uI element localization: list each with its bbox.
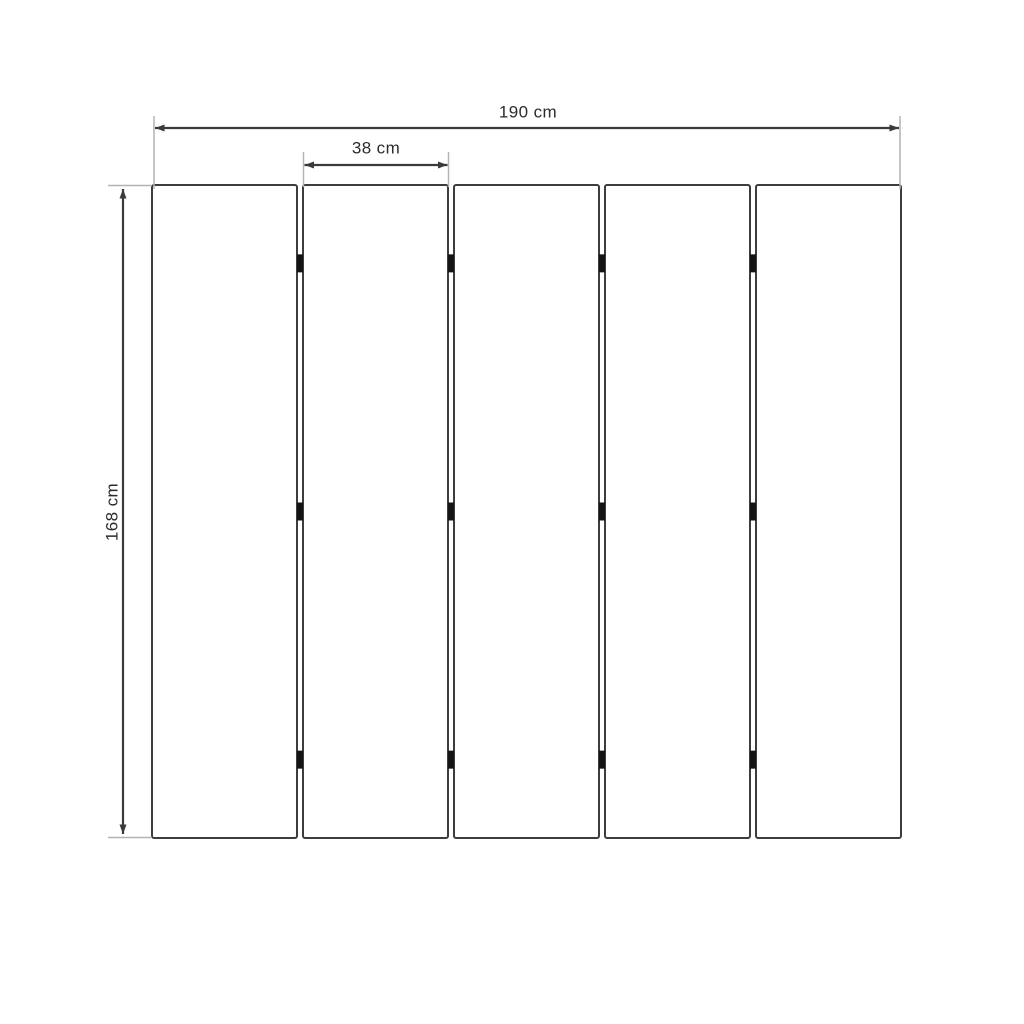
hinge-mark-joint1-1 <box>297 254 303 272</box>
dimension-total-width: 190 cm <box>154 103 900 190</box>
dimension-label-panel-width: 38 cm <box>352 139 400 158</box>
dimension-label-height: 168 cm <box>103 483 122 541</box>
hinge-mark-joint3-2 <box>599 503 605 521</box>
hinge-mark-joint3-1 <box>599 254 605 272</box>
panel-2 <box>303 185 448 838</box>
panel-3 <box>454 185 599 838</box>
dimension-height: 168 cm <box>103 186 153 838</box>
hinge-mark-joint2-2 <box>448 503 454 521</box>
hinge-mark-joint2-3 <box>448 751 454 769</box>
hinge-mark-joint4-2 <box>750 503 756 521</box>
hinge-mark-joint1-2 <box>297 503 303 521</box>
hinge-mark-joint3-3 <box>599 751 605 769</box>
panel-4 <box>605 185 750 838</box>
divider-diagram: 190 cm 38 cm 168 cm <box>0 0 1024 1024</box>
panels-group <box>152 185 901 838</box>
dimension-panel-width: 38 cm <box>304 139 449 188</box>
hinge-mark-joint4-3 <box>750 751 756 769</box>
hinge-mark-joint4-1 <box>750 254 756 272</box>
panel-1 <box>152 185 297 838</box>
drawing-canvas: 190 cm 38 cm 168 cm <box>0 0 1024 1024</box>
hinge-mark-joint1-3 <box>297 751 303 769</box>
dimension-label-total-width: 190 cm <box>499 103 557 122</box>
panel-5 <box>756 185 901 838</box>
hinge-mark-joint2-1 <box>448 254 454 272</box>
